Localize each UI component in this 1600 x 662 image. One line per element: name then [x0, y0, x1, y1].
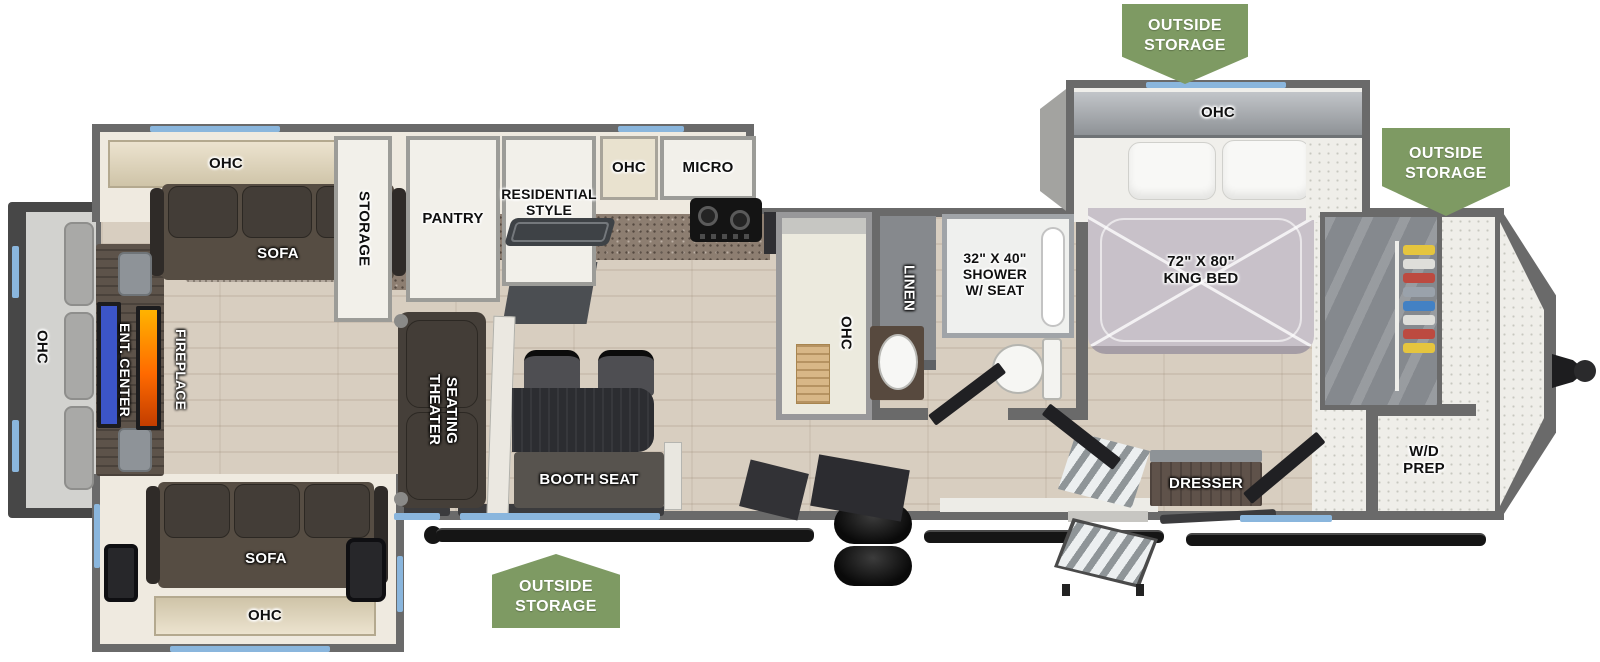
- wd-wall-vertical: [1366, 404, 1378, 516]
- bath-wall-right: [1076, 208, 1088, 418]
- dresser: DRESSER: [1150, 462, 1262, 506]
- bottom-window: [460, 513, 660, 520]
- bottom-window: [394, 513, 440, 520]
- clothes-item: [1403, 315, 1435, 325]
- shower-seat: [1041, 227, 1065, 327]
- kitchen-sink: [504, 218, 616, 246]
- micro-label: MICRO: [683, 160, 734, 177]
- ohc-bottom-label: OHC: [248, 608, 282, 625]
- slide-window: [94, 504, 100, 568]
- bed-foot-shadow: [1088, 346, 1314, 354]
- booth-side-panel: [664, 442, 682, 510]
- sofa-cushion: [242, 186, 312, 238]
- island-wood-inset: [796, 344, 830, 404]
- kitchen-island: OHC: [776, 212, 872, 420]
- fireplace-insert: [136, 306, 161, 430]
- slide-side-window: [346, 538, 386, 602]
- bath-wall-bottom-left: [868, 408, 928, 420]
- sink-basin: [510, 222, 610, 242]
- rear-window: [12, 420, 19, 472]
- king-bed: 72" X 80" KING BED: [1088, 208, 1314, 354]
- clothes-item: [1403, 329, 1435, 339]
- wheel: [834, 546, 912, 586]
- step-leg: [1136, 584, 1144, 596]
- clothes-item: [1403, 259, 1435, 269]
- cooktop: [690, 198, 762, 242]
- burner: [730, 210, 750, 230]
- awning-rail: [1186, 533, 1486, 546]
- sofa-top-label: SOFA: [257, 246, 299, 263]
- slide-window: [397, 556, 403, 612]
- outside-storage-label: OUTSIDE STORAGE: [1144, 16, 1226, 56]
- closet-rod: [1395, 241, 1399, 391]
- dresser-top: [1150, 450, 1262, 462]
- bedroom-slide-sidewall: [1306, 140, 1362, 220]
- rear-window: [12, 246, 19, 298]
- speaker: [118, 252, 152, 296]
- island-top: [782, 218, 866, 234]
- sofa-armrest: [146, 486, 160, 584]
- cooktop-knobs: [700, 234, 752, 239]
- slide-window: [150, 126, 280, 132]
- slide-window: [170, 646, 330, 652]
- slide-window: [1146, 82, 1286, 88]
- pillow: [1128, 142, 1216, 200]
- burner: [698, 206, 718, 226]
- hanging-clothes: [1403, 245, 1435, 391]
- sofa-cushion: [234, 484, 300, 538]
- storage-label: STORAGE: [355, 191, 372, 266]
- bedroom-ohc-label: OHC: [1201, 105, 1235, 122]
- sofa-cushion: [164, 484, 230, 538]
- king-bed-label: 72" X 80" KING BED: [1164, 254, 1239, 288]
- dresser-label: DRESSER: [1169, 476, 1243, 493]
- clothes-item: [1403, 287, 1435, 297]
- rear-cabinet: [64, 222, 94, 306]
- wardrobe: [1320, 212, 1442, 410]
- linen-label: LINEN: [900, 265, 917, 311]
- clothes-item: [1403, 301, 1435, 311]
- sofa-armrest: [150, 188, 164, 276]
- outside-storage-label: OUTSIDE STORAGE: [1405, 144, 1487, 184]
- awning-rail: [436, 528, 814, 542]
- storage-cabinet: STORAGE: [334, 136, 392, 322]
- sofa-cushion: [304, 484, 370, 538]
- clothes-item: [1403, 245, 1435, 255]
- theater-seating-label: THEATER SEATING: [425, 374, 459, 445]
- rear-ohc-label: OHC: [33, 330, 50, 364]
- toilet-tank: [1042, 338, 1062, 400]
- outside-storage-badge-bottom: OUTSIDE STORAGE: [492, 554, 620, 628]
- pillow: [1222, 140, 1310, 200]
- outside-storage-badge-front: OUTSIDE STORAGE: [1382, 128, 1510, 216]
- booth-table: [512, 388, 654, 452]
- ohc-cabinet-bottom: OHC: [154, 596, 376, 636]
- shower-label: 32" X 40" SHOWER W/ SEAT: [963, 251, 1027, 298]
- microwave-cabinet: MICRO: [660, 136, 756, 200]
- pantry-label: PANTRY: [422, 211, 483, 228]
- rear-cabinet: [64, 312, 94, 400]
- rv-floorplan: OHC ENT. CENTER FIREPLACE OHC SOFA STORA…: [0, 0, 1600, 662]
- hitch-ball: [1574, 360, 1596, 382]
- island-ohc-label: OHC: [837, 316, 854, 350]
- sofa-cushion: [168, 186, 238, 238]
- sofa-bottom-label: SOFA: [245, 551, 287, 568]
- booth-seat: BOOTH SEAT: [514, 452, 664, 508]
- sofa-bottom: SOFA: [158, 482, 374, 588]
- clothes-item: [1403, 343, 1435, 353]
- ent-center-label: ENT. CENTER: [116, 323, 132, 417]
- outside-storage-label: OUTSIDE STORAGE: [515, 577, 597, 617]
- shower: 32" X 40" SHOWER W/ SEAT: [942, 214, 1074, 338]
- ohc-kitchen: OHC: [600, 136, 658, 200]
- slide-window: [618, 126, 684, 132]
- wd-prep-label: W/D PREP: [1403, 444, 1445, 478]
- fireplace-label: FIREPLACE: [172, 329, 188, 410]
- slide-side-window: [104, 544, 138, 602]
- sofa-armrest: [392, 188, 406, 276]
- bath-sink: [878, 334, 918, 390]
- outside-storage-badge-top: OUTSIDE STORAGE: [1122, 4, 1248, 84]
- theater-seating: THEATER SEATING: [398, 312, 486, 508]
- bedroom-ohc: OHC: [1074, 92, 1362, 138]
- booth-seat-label: BOOTH SEAT: [539, 472, 638, 489]
- speaker: [118, 428, 152, 472]
- step-leg: [1062, 584, 1070, 596]
- ohc-cabinet-top: OHC: [108, 140, 344, 188]
- ohc-kitchen-label: OHC: [612, 160, 646, 177]
- clothes-item: [1403, 273, 1435, 283]
- pantry-cabinet: PANTRY: [406, 136, 500, 302]
- refrigerator: RESIDENTIAL STYLE REFER: [502, 136, 596, 286]
- rear-cabinet: [64, 406, 94, 490]
- ohc-top-label: OHC: [209, 156, 243, 173]
- bottom-window: [1240, 515, 1332, 522]
